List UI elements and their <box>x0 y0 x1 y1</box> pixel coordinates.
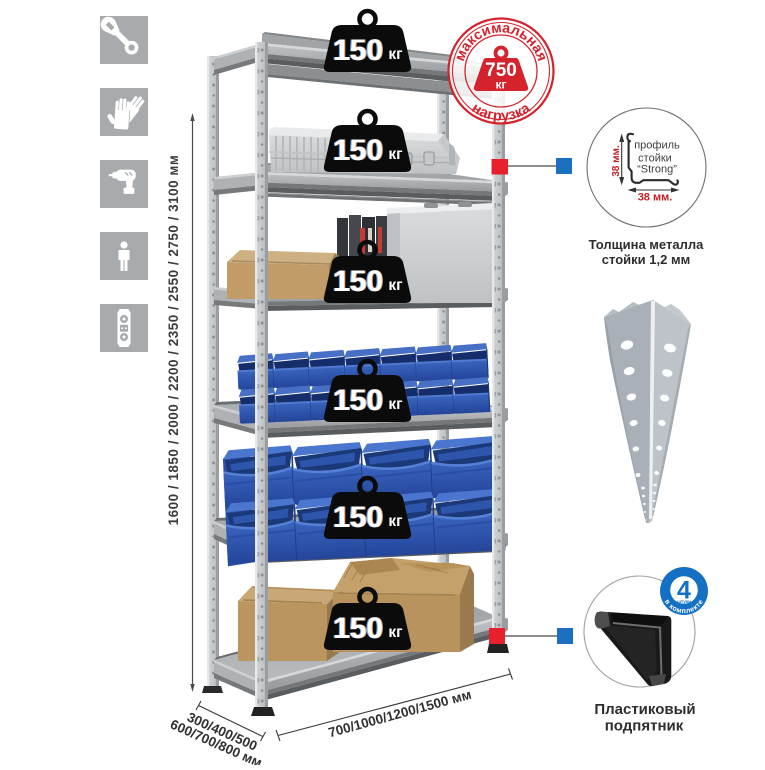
svg-text:38 мм.: 38 мм. <box>611 145 622 177</box>
svg-text:подпятник: подпятник <box>605 718 684 735</box>
svg-text:профиль: профиль <box>634 140 680 152</box>
svg-text:150: 150 <box>333 134 383 167</box>
svg-text:Толщина металла: Толщина металла <box>589 237 704 252</box>
svg-text:38 мм.: 38 мм. <box>638 192 673 204</box>
svg-text:150: 150 <box>333 612 383 645</box>
svg-text:кг: кг <box>388 396 403 413</box>
svg-text:стойки 1,2 мм: стойки 1,2 мм <box>602 252 690 267</box>
svg-text:штуки: штуки <box>677 599 691 604</box>
svg-text:кг: кг <box>388 46 403 63</box>
svg-text:Пластиковый: Пластиковый <box>594 701 695 718</box>
svg-text:1600 / 1850 / 2000 / 2200 / 23: 1600 / 1850 / 2000 / 2200 / 2350 / 2550 … <box>166 155 181 526</box>
svg-text:150: 150 <box>333 384 383 417</box>
svg-text:кг: кг <box>388 513 403 530</box>
svg-text:150: 150 <box>333 265 383 298</box>
svg-text:“Strong”: “Strong” <box>637 164 677 176</box>
svg-text:кг: кг <box>388 146 403 163</box>
svg-text:150: 150 <box>333 34 383 67</box>
svg-text:700/1000/1200/1500 мм: 700/1000/1200/1500 мм <box>327 687 473 740</box>
svg-text:кг: кг <box>388 277 403 294</box>
svg-text:кг: кг <box>388 624 403 641</box>
svg-text:150: 150 <box>333 501 383 534</box>
svg-text:кг: кг <box>495 78 506 92</box>
